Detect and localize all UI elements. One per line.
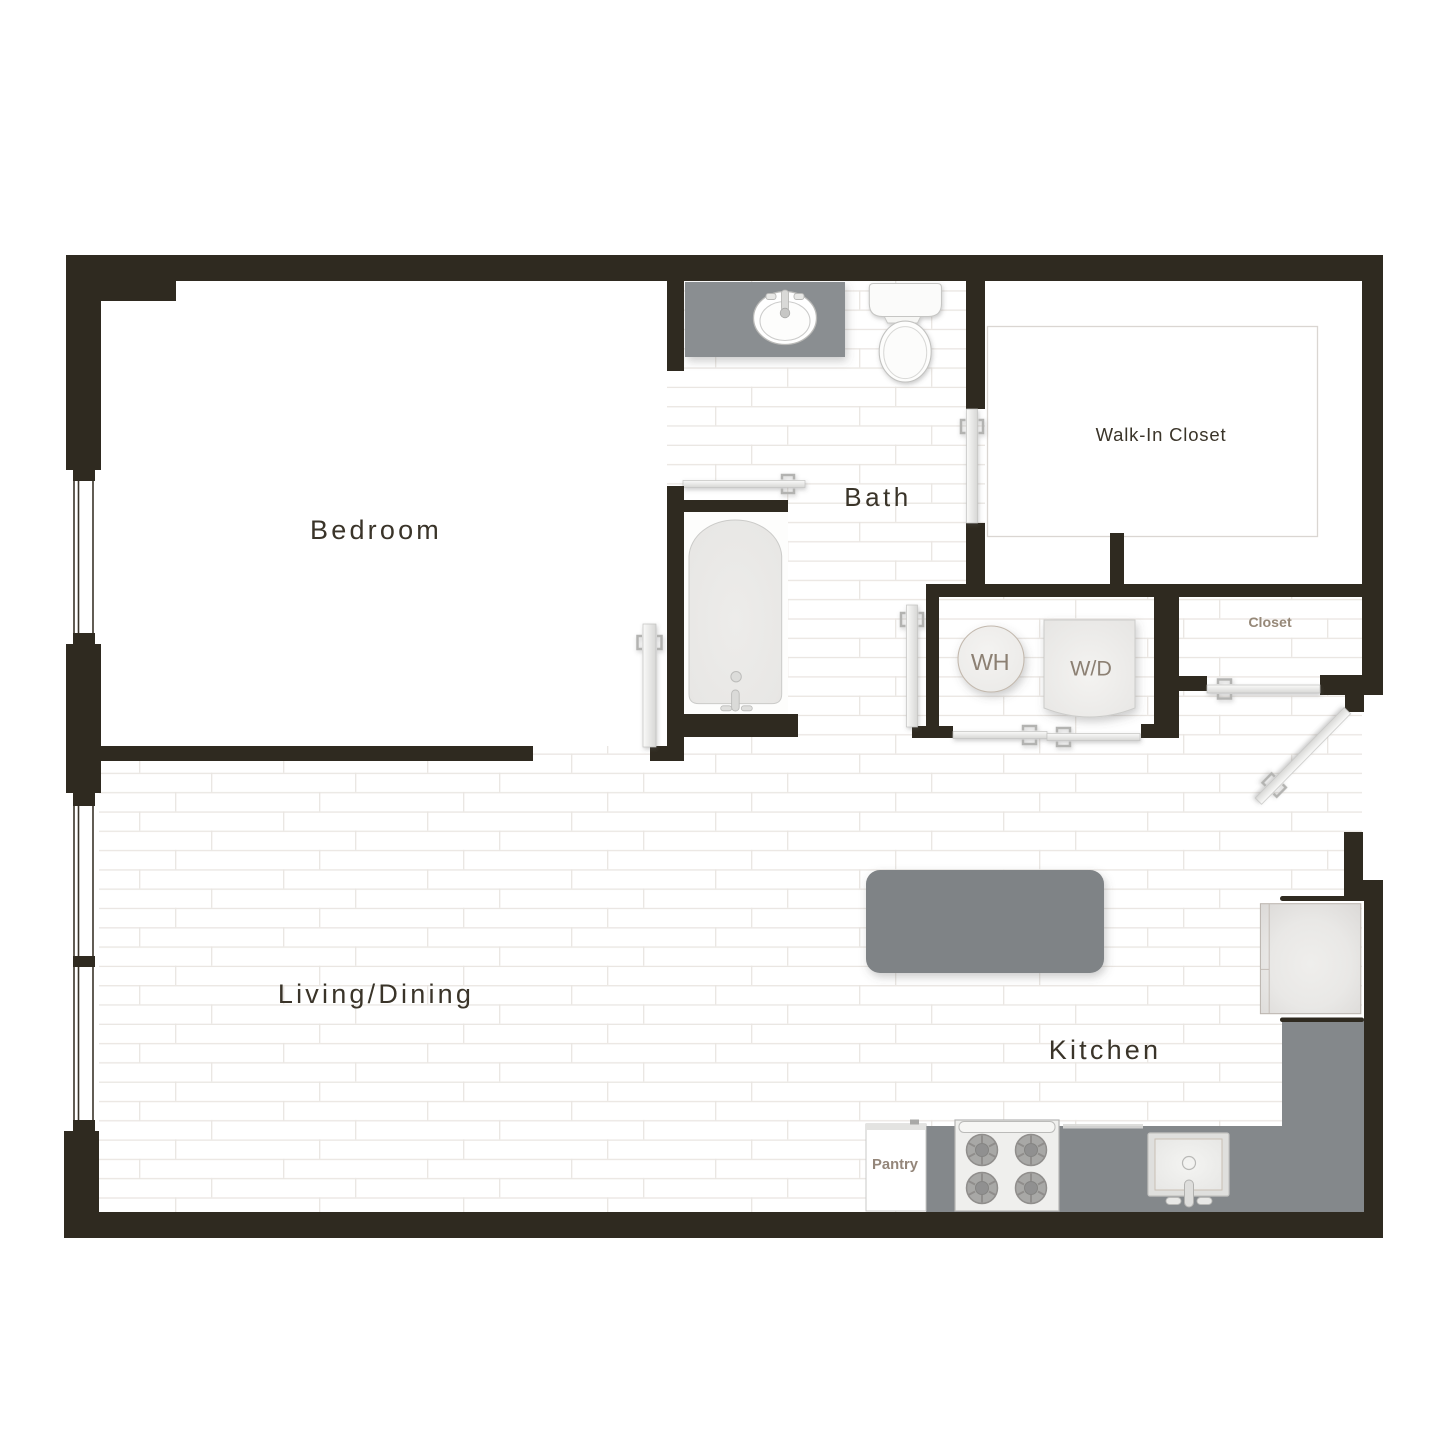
- svg-text:Closet: Closet: [1248, 615, 1292, 631]
- svg-text:Kitchen: Kitchen: [1049, 1035, 1161, 1065]
- svg-text:W/D: W/D: [1070, 657, 1112, 681]
- svg-text:Walk-In Closet: Walk-In Closet: [1096, 424, 1227, 445]
- svg-text:Living/Dining: Living/Dining: [278, 979, 474, 1009]
- svg-text:Pantry: Pantry: [872, 1157, 919, 1173]
- svg-text:Bath: Bath: [844, 482, 912, 512]
- svg-text:Bedroom: Bedroom: [310, 515, 442, 545]
- svg-text:WH: WH: [971, 649, 1009, 675]
